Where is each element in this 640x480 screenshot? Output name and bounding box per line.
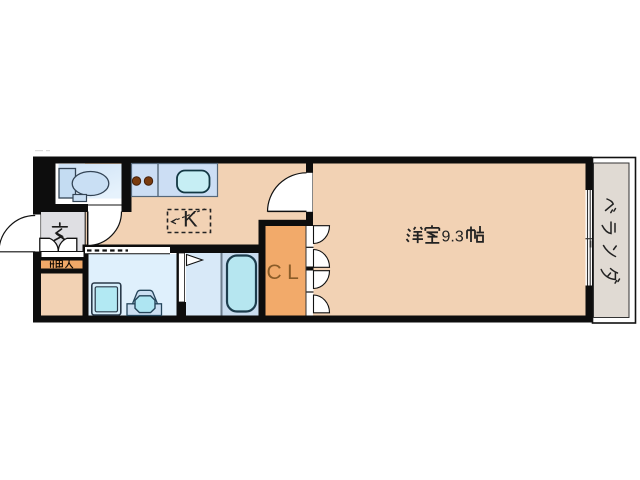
svg-text:9.3: 9.3 bbox=[442, 228, 464, 245]
svg-text:K: K bbox=[183, 207, 198, 232]
svg-text:CL: CL bbox=[267, 261, 305, 284]
